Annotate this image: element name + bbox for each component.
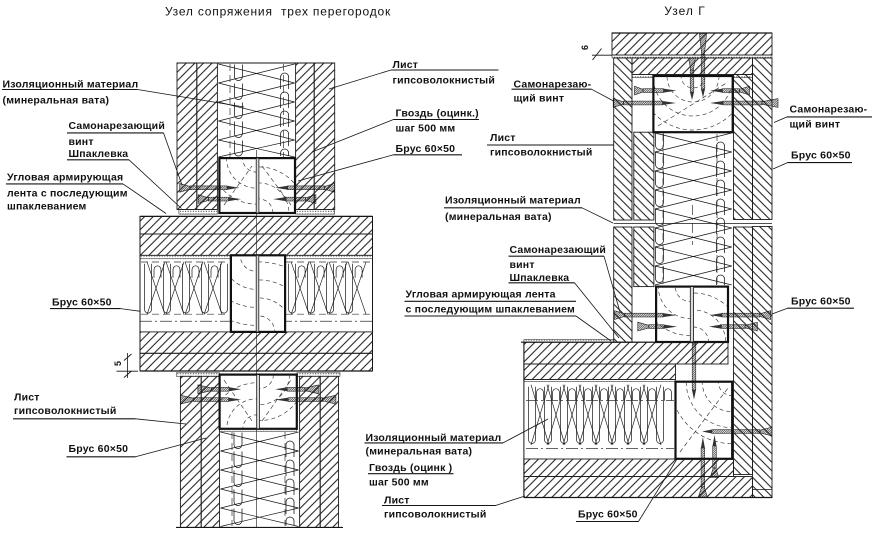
- svg-text:Угловая армирующая: Угловая армирующая: [7, 172, 123, 184]
- svg-text:Шпаклевка: Шпаклевка: [510, 272, 570, 284]
- svg-text:Лист: Лист: [384, 495, 410, 507]
- svg-text:Гвоздь (оцинк ): Гвоздь (оцинк ): [369, 462, 452, 474]
- svg-text:шаг 500 мм: шаг 500 мм: [396, 123, 456, 135]
- svg-text:Лист: Лист: [393, 59, 419, 71]
- svg-text:Угловая армирующая лента: Угловая армирующая лента: [406, 289, 556, 301]
- svg-text:винт: винт: [510, 259, 535, 271]
- svg-text:6: 6: [580, 45, 590, 50]
- svg-text:Узел сопряжения трех перегоро: Узел сопряжения трех перегородок: [165, 5, 391, 19]
- svg-text:Изоляционный материал: Изоляционный материал: [3, 79, 139, 91]
- svg-text:щий винт: щий винт: [790, 119, 841, 131]
- svg-text:Лист: Лист: [14, 392, 40, 404]
- svg-text:Изоляционный материал: Изоляционный материал: [366, 432, 502, 444]
- svg-text:Самонарезаю-: Самонарезаю-: [790, 104, 868, 116]
- svg-text:винт: винт: [69, 136, 94, 148]
- svg-text:гипсоволокнистый: гипсоволокнистый: [14, 405, 117, 417]
- svg-text:Узел Г: Узел Г: [664, 4, 705, 18]
- svg-text:Изоляционный материал: Изоляционный материал: [445, 195, 581, 207]
- svg-text:Гвоздь (оцинк.): Гвоздь (оцинк.): [396, 108, 479, 120]
- svg-text:гипсоволокнистый: гипсоволокнистый: [384, 509, 487, 521]
- svg-text:Брус 60×50: Брус 60×50: [396, 143, 456, 155]
- svg-text:с последующим шпаклеванием: с последующим шпаклеванием: [406, 304, 576, 316]
- svg-text:гипсоволокнистый: гипсоволокнистый: [490, 147, 593, 159]
- svg-text:(минеральная вата): (минеральная вата): [366, 446, 473, 458]
- svg-text:Брус 60×50: Брус 60×50: [578, 509, 638, 521]
- svg-text:5: 5: [113, 361, 123, 366]
- svg-text:щий винт: щий винт: [514, 93, 565, 105]
- svg-text:Брус 60×50: Брус 60×50: [69, 443, 129, 455]
- svg-text:Самонарезающий: Самонарезающий: [510, 244, 607, 256]
- svg-text:Самонарезающий: Самонарезающий: [69, 120, 166, 132]
- svg-text:шпаклеванием: шпаклеванием: [7, 201, 87, 213]
- svg-text:(минеральная вата): (минеральная вата): [3, 95, 110, 107]
- svg-text:Брус 60×50: Брус 60×50: [791, 150, 851, 162]
- svg-text:Шпаклевка: Шпаклевка: [69, 148, 129, 160]
- svg-text:(минеральная вата): (минеральная вата): [445, 211, 552, 223]
- svg-text:гипсоволокнистый: гипсоволокнистый: [393, 75, 496, 87]
- svg-text:Брус 60×50: Брус 60×50: [791, 296, 851, 308]
- svg-text:лента с последующим: лента с последующим: [7, 188, 128, 200]
- svg-text:Лист: Лист: [490, 132, 516, 144]
- svg-text:шаг 500 мм: шаг 500 мм: [369, 477, 429, 489]
- svg-text:Брус 60×50: Брус 60×50: [52, 297, 112, 309]
